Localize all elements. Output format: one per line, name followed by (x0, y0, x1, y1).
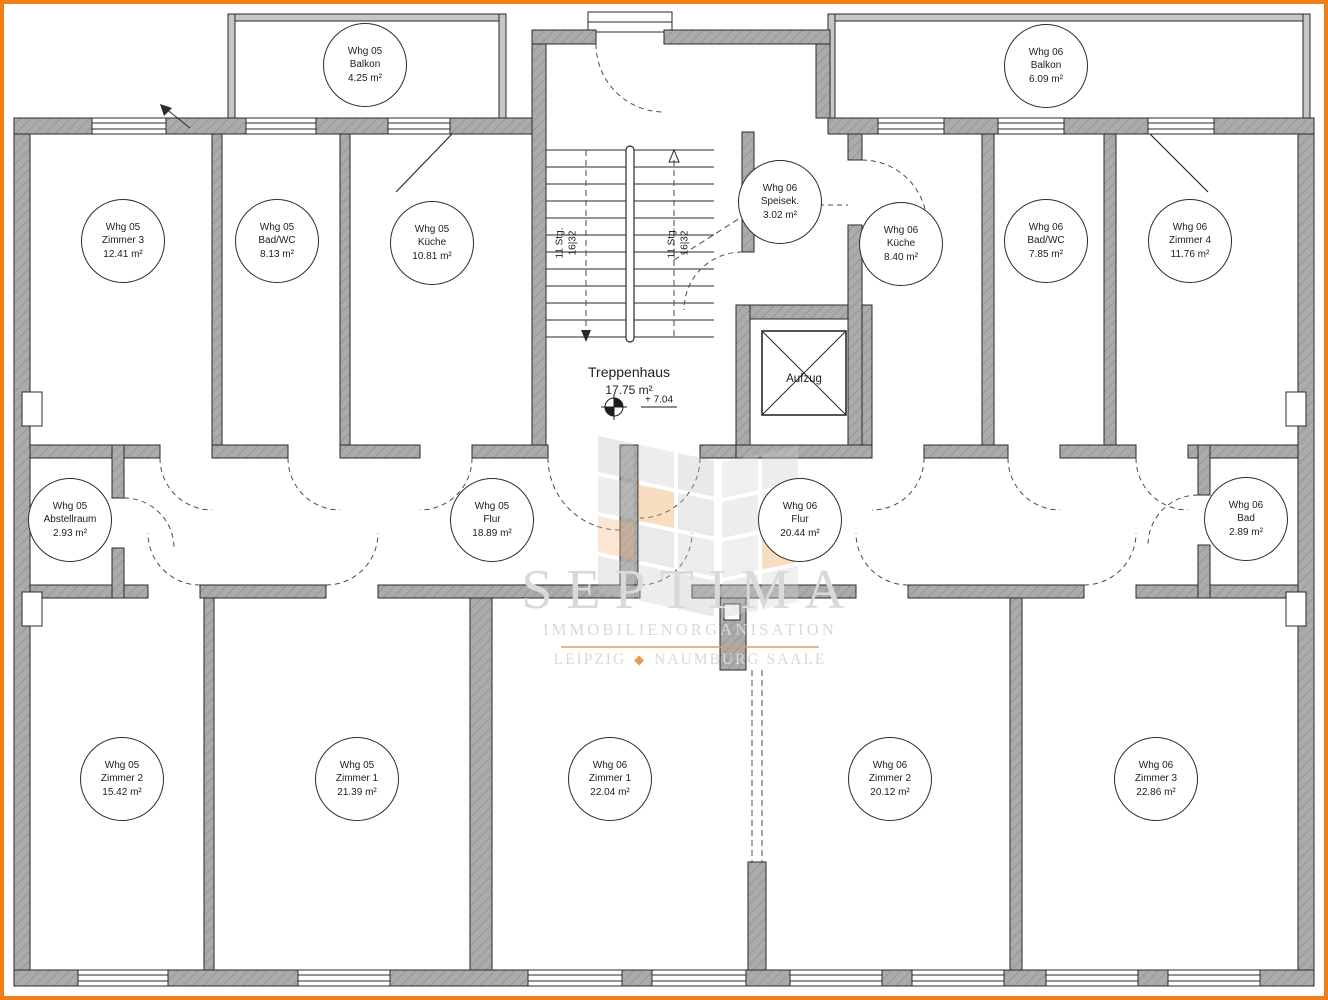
room-name: Bad/WC (1027, 234, 1064, 247)
room-name: Zimmer 2 (101, 772, 143, 785)
room-label: Whg 06 Balkon 6.09 m² (1004, 24, 1088, 108)
room-label: Whg 06 Bad 2.89 m² (1204, 477, 1288, 561)
room-label: Whg 05 Balkon 4.25 m² (323, 23, 407, 107)
room-name: Flur (483, 513, 500, 526)
room-name: Bad/WC (258, 234, 295, 247)
room-name: Zimmer 2 (869, 772, 911, 785)
room-label: Whg 06 Flur 20.44 m² (758, 478, 842, 562)
room-unit: Whg 05 (260, 221, 294, 234)
stair-flight-label-left: 11 Stg. 16|32 (555, 228, 580, 259)
room-name: Zimmer 1 (336, 772, 378, 785)
room-area: 4.25 m² (348, 72, 382, 85)
room-area: 21.39 m² (337, 786, 376, 799)
room-area: 18.89 m² (472, 527, 511, 540)
room-name: Bad (1237, 512, 1255, 525)
room-area: 20.44 m² (780, 527, 819, 540)
room-unit: Whg 05 (475, 500, 509, 513)
room-label: Whg 05 Zimmer 2 15.42 m² (80, 737, 164, 821)
room-area: 22.04 m² (590, 786, 629, 799)
room-unit: Whg 06 (1029, 221, 1063, 234)
room-unit: Whg 05 (53, 500, 87, 513)
room-label: Whg 05 Zimmer 1 21.39 m² (315, 737, 399, 821)
watermark-city-leipzig: LEIPZIG (554, 651, 627, 668)
room-unit: Whg 06 (1139, 759, 1173, 772)
room-name: Balkon (350, 58, 381, 71)
watermark-city-naumburg: NAUMBURG SAALE (654, 651, 826, 668)
room-unit: Whg 06 (873, 759, 907, 772)
room-name: Zimmer 4 (1169, 234, 1211, 247)
room-unit: Whg 05 (106, 221, 140, 234)
room-label: Whg 05 Küche 10.81 m² (390, 201, 474, 285)
watermark-brand: SEPTIMA (521, 558, 859, 622)
room-area: 12.41 m² (103, 248, 142, 261)
stairwell-level: + 7.04 (641, 395, 677, 408)
room-label: Whg 06 Zimmer 3 22.86 m² (1114, 737, 1198, 821)
stair-count: 11 Stg. (667, 228, 678, 259)
room-area: 6.09 m² (1029, 73, 1063, 86)
room-unit: Whg 05 (348, 45, 382, 58)
room-area: 2.93 m² (53, 527, 87, 540)
floor-plan-page: Treppenhaus 17.75 m² + 7.04 Aufzug 11 St… (0, 0, 1328, 1000)
room-area: 11.76 m² (1171, 248, 1210, 261)
stair-handrail (626, 146, 634, 342)
room-name: Speisek. (761, 195, 799, 208)
stair-ratio: 16|32 (679, 231, 690, 256)
room-name: Balkon (1031, 59, 1062, 72)
watermark-rule (561, 646, 819, 648)
room-unit: Whg 05 (415, 223, 449, 236)
room-label: Whg 05 Bad/WC 8.13 m² (235, 199, 319, 283)
room-unit: Whg 05 (105, 759, 139, 772)
room-area: 20.12 m² (870, 786, 909, 799)
elevator-label: Aufzug (786, 373, 822, 385)
room-label: Whg 05 Abstellraum 2.93 m² (28, 478, 112, 562)
room-area: 15.42 m² (102, 786, 141, 799)
room-name: Küche (418, 236, 446, 249)
room-name: Zimmer 3 (1135, 772, 1177, 785)
room-unit: Whg 06 (783, 500, 817, 513)
room-name: Küche (887, 237, 915, 250)
room-unit: Whg 06 (1229, 499, 1263, 512)
stairwell-name: Treppenhaus (588, 364, 670, 380)
room-label: Whg 06 Zimmer 4 11.76 m² (1148, 199, 1232, 283)
room-label: Whg 06 Bad/WC 7.85 m² (1004, 199, 1088, 283)
stair-flight-label-right: 11 Stg. 16|32 (667, 228, 692, 259)
diamond-icon: ◆ (626, 652, 654, 667)
room-unit: Whg 06 (1173, 221, 1207, 234)
room-name: Zimmer 1 (589, 772, 631, 785)
room-unit: Whg 06 (593, 759, 627, 772)
room-area: 22.86 m² (1136, 786, 1175, 799)
room-name: Abstellraum (44, 513, 97, 526)
stair-ratio: 16|32 (567, 231, 578, 256)
room-label: Whg 06 Zimmer 2 20.12 m² (848, 737, 932, 821)
room-unit: Whg 06 (763, 182, 797, 195)
room-label: Whg 06 Zimmer 1 22.04 m² (568, 737, 652, 821)
room-unit: Whg 06 (884, 224, 918, 237)
floor-plan-drawing (0, 0, 1328, 1000)
room-area: 8.13 m² (260, 248, 294, 261)
room-name: Flur (791, 513, 808, 526)
room-unit: Whg 05 (340, 759, 374, 772)
room-area: 2.89 m² (1229, 526, 1263, 539)
room-area: 3.02 m² (763, 209, 797, 222)
room-name: Zimmer 3 (102, 234, 144, 247)
room-label: Whg 06 Speisek. 3.02 m² (738, 160, 822, 244)
stair-count: 11 Stg. (555, 228, 566, 259)
room-area: 8.40 m² (884, 251, 918, 264)
room-unit: Whg 06 (1029, 46, 1063, 59)
room-label: Whg 05 Zimmer 3 12.41 m² (81, 199, 165, 283)
watermark-cities: LEIPZIG◆NAUMBURG SAALE (554, 651, 827, 669)
room-label: Whg 05 Flur 18.89 m² (450, 478, 534, 562)
room-area: 10.81 m² (412, 250, 451, 263)
entrance-steps (588, 12, 672, 32)
room-label: Whg 06 Küche 8.40 m² (859, 202, 943, 286)
watermark-subtitle: IMMOBILIENORGANISATION (543, 620, 837, 640)
room-area: 7.85 m² (1029, 248, 1063, 261)
